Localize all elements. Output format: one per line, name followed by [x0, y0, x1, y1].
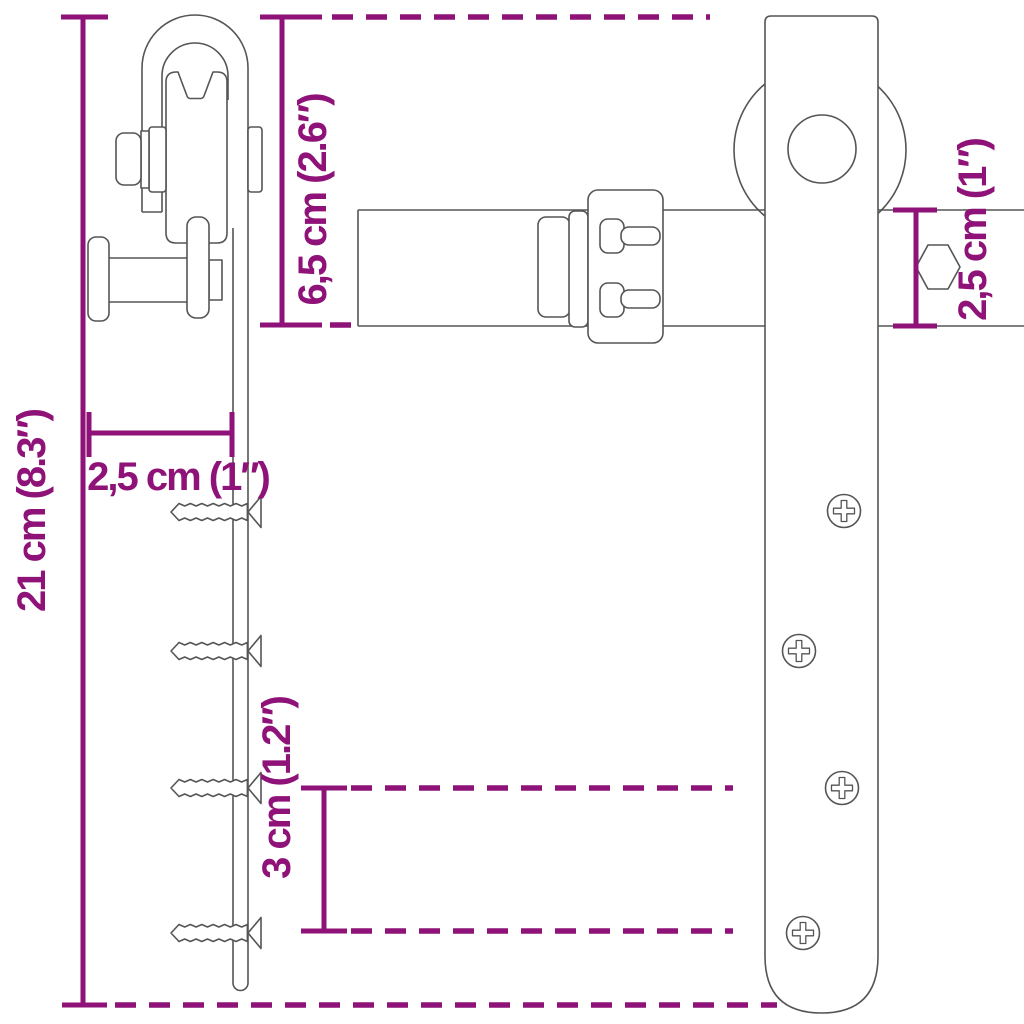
dim-line-bracket-depth	[89, 412, 232, 457]
bracket-clamp	[538, 217, 570, 317]
bracket-pin-stem-1	[621, 227, 660, 245]
phillips-screw-2	[783, 635, 816, 668]
mount-knob-cap	[88, 237, 109, 321]
hardware-line-art	[0, 0, 1024, 1024]
hanger-side-view	[88, 15, 262, 991]
mount-knob-stem	[107, 258, 190, 302]
dim-label-screw-spacing: 3 cm (1.2″)	[257, 697, 297, 879]
mount-plate	[187, 217, 209, 318]
dim-line-screw-spacing	[301, 788, 347, 931]
dim-label-rail-width: 2,5 cm (1″)	[953, 139, 993, 321]
phillips-screw-4	[787, 917, 820, 950]
axle-bolt-head	[116, 133, 141, 185]
mount-spacer	[209, 260, 222, 300]
hanger-front-view	[358, 16, 1024, 1013]
axle-washer	[141, 131, 149, 188]
axle-hub	[149, 127, 166, 192]
bracket-body	[588, 190, 663, 343]
phillips-screw-1	[828, 495, 861, 528]
rail-mount-bracket	[538, 190, 663, 343]
dimension-diagram: 21 cm (8.3″) 6,5 cm (2.6″) 2,5 cm (1″) 3…	[0, 0, 1024, 1024]
dim-line-strap-length	[61, 17, 108, 1005]
bracket-mid	[569, 211, 588, 327]
bracket-pin-stem-2	[621, 290, 660, 308]
dim-label-bracket-depth: 2,5 cm (1″)	[87, 457, 269, 497]
phillips-screw-3	[826, 772, 859, 805]
dim-label-roller-height: 6,5 cm (2.6″)	[293, 94, 333, 305]
dim-label-strap-length: 21 cm (8.3″)	[12, 410, 52, 612]
axle-bolt-front	[788, 115, 856, 183]
axle-nut-right	[248, 127, 262, 192]
